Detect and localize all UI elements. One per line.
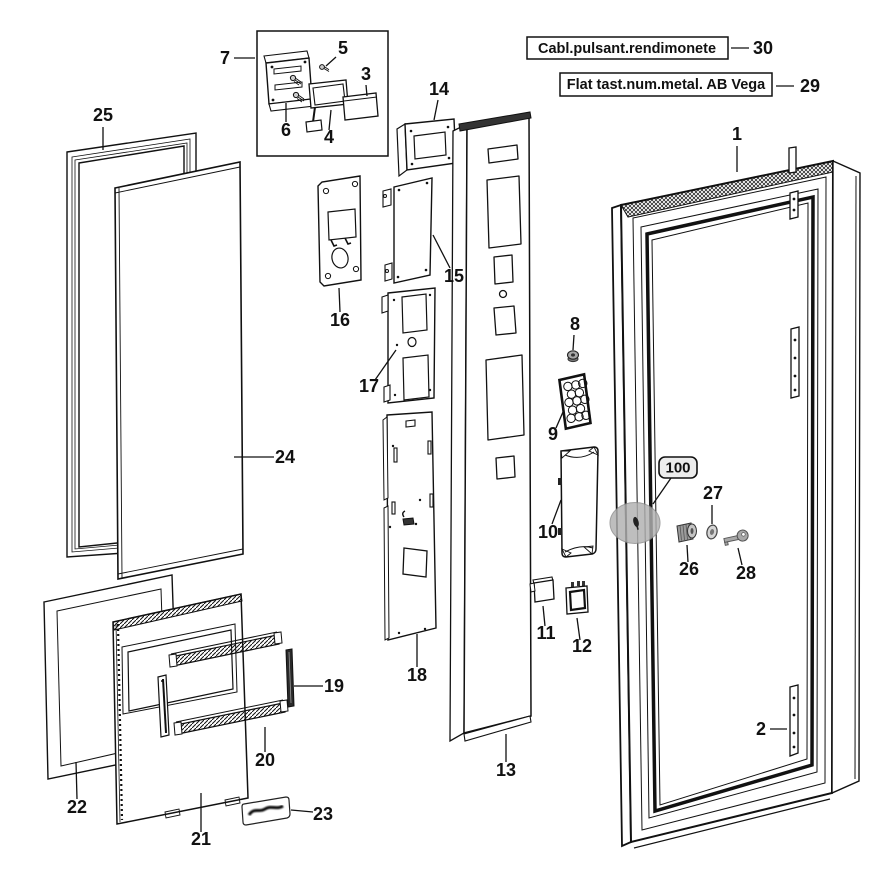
leader-23	[291, 810, 313, 812]
hinge-strip-1	[790, 191, 798, 219]
callout-5: 5	[338, 38, 348, 58]
callout-10: 10	[538, 522, 558, 542]
leader-16	[339, 288, 340, 312]
part-9-button-grid	[559, 374, 591, 429]
part-18-latch	[403, 518, 414, 525]
part-1-main-door	[612, 147, 860, 848]
callout-8: 8	[570, 314, 580, 334]
callout-13: 13	[496, 760, 516, 780]
part-14-bracket-plate	[397, 119, 456, 176]
callout-100: 100	[665, 460, 690, 477]
leader-10	[552, 500, 561, 524]
part-15-flat-plate	[383, 178, 432, 283]
part-8-grommet	[568, 351, 579, 362]
callout-6: 6	[281, 120, 291, 140]
callout-21: 21	[191, 829, 211, 849]
part-11-clip	[530, 577, 554, 602]
callout-28: 28	[736, 563, 756, 583]
diagram-canvas: Cabl.pulsant.rendimonete 30 Flat tast.nu…	[0, 0, 870, 870]
part-21-inner-door-panel	[113, 594, 248, 824]
part-16-mount-plate	[318, 176, 361, 286]
part-12-switch	[566, 581, 588, 614]
callout-25: 25	[93, 105, 113, 125]
callout-15: 15	[444, 266, 464, 286]
callout-27: 27	[703, 483, 723, 503]
callout-11: 11	[536, 623, 555, 643]
hinge-strip-2	[791, 327, 799, 398]
leader-8	[573, 335, 574, 350]
hinge-strip-3-part-2	[790, 685, 798, 756]
boxed-label-30: Cabl.pulsant.rendimonete 30	[527, 37, 773, 59]
callout-22: 22	[67, 797, 87, 817]
callout-19: 19	[324, 676, 344, 696]
hinge-pin-top	[789, 147, 796, 173]
part-3-plate	[343, 93, 378, 120]
callout-30: 30	[753, 38, 773, 58]
callout-26: 26	[679, 559, 699, 579]
callout-29: 29	[800, 76, 820, 96]
callout-9: 9	[548, 424, 558, 444]
callout-18: 18	[407, 665, 427, 685]
exploded-parts-diagram: Cabl.pulsant.rendimonete 30 Flat tast.nu…	[0, 0, 870, 870]
part-23-logo-sticker	[242, 797, 290, 825]
part-17-plate-two-cutouts	[382, 288, 435, 403]
lock-highlight	[610, 503, 660, 544]
part-18-back-plate	[383, 412, 436, 640]
boxed-label-29: Flat tast.num.metal. AB Vega 29	[560, 73, 820, 96]
leader-15	[433, 235, 450, 268]
callout-2: 2	[756, 719, 766, 739]
callout-20: 20	[255, 750, 275, 770]
callout-17: 17	[359, 376, 379, 396]
part-13-fascia-panel	[450, 112, 531, 741]
bracket-front	[266, 58, 312, 104]
callout-14: 14	[429, 79, 449, 99]
part-24-glass-panel	[115, 162, 243, 579]
callout-7: 7	[220, 48, 230, 68]
callout-16: 16	[330, 310, 350, 330]
callout-3: 3	[361, 64, 371, 84]
leader-14	[434, 100, 438, 120]
callout-24: 24	[275, 447, 295, 467]
boxed-label-29-text: Flat tast.num.metal. AB Vega	[567, 77, 766, 93]
part-10-door-flap	[558, 447, 598, 557]
callout-12: 12	[572, 636, 592, 656]
callout-1: 1	[732, 124, 742, 144]
callout-4: 4	[324, 127, 334, 147]
boxed-label-30-text: Cabl.pulsant.rendimonete	[538, 41, 716, 57]
callout-23: 23	[313, 804, 333, 824]
part-7-coin-return-assembly	[257, 31, 388, 156]
